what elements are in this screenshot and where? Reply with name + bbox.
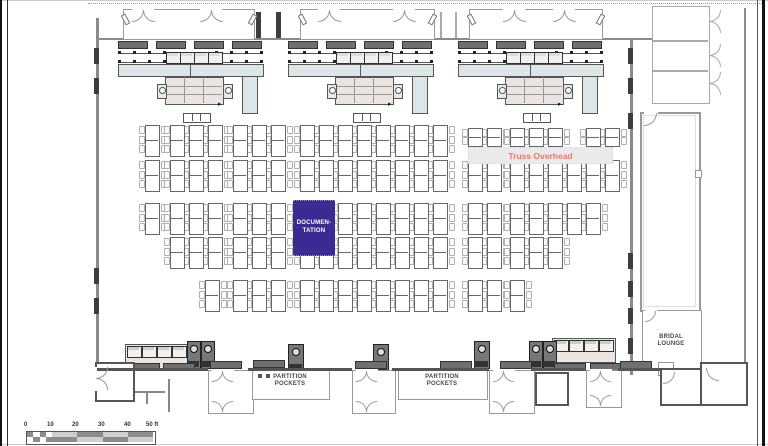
floor-mat — [210, 361, 242, 369]
partition-pockets-left-line2: POCKETS — [262, 381, 318, 388]
rail-post — [288, 60, 291, 63]
floor-mat — [572, 41, 602, 49]
banquet-table — [433, 125, 448, 157]
frame-left-outer — [0, 0, 2, 446]
banquet-table-divider — [146, 218, 158, 219]
banquet-table-divider — [606, 137, 618, 138]
banquet-table — [548, 128, 563, 147]
banquet-table — [319, 160, 334, 192]
scale-label-30: 30 — [98, 422, 105, 428]
banquet-table — [548, 203, 563, 235]
banquet-table-divider — [434, 295, 446, 296]
block-line-h — [165, 86, 222, 87]
banquet-table — [205, 280, 220, 312]
floor-mat — [194, 41, 224, 49]
banquet-table — [145, 160, 160, 192]
banquet-table — [433, 203, 448, 235]
banquet-table-divider — [377, 295, 389, 296]
banquet-table — [271, 203, 286, 235]
banquet-table — [510, 280, 525, 312]
scale-label-40: 40 — [124, 422, 131, 428]
urn-circle — [225, 87, 232, 94]
queue-rail — [118, 62, 165, 63]
urn-circle — [499, 87, 506, 94]
banquet-table-divider — [234, 252, 246, 253]
banquet-table-divider — [511, 295, 523, 296]
rail-post — [473, 51, 476, 54]
chair — [449, 248, 455, 256]
banquet-table — [548, 160, 563, 192]
banquet-table — [271, 280, 286, 312]
banquet-table — [468, 280, 483, 312]
room-door-swing — [709, 55, 721, 67]
banquet-table — [567, 203, 582, 235]
banquet-table — [487, 280, 502, 312]
block-line-v — [203, 77, 204, 103]
banquet-table-divider — [171, 175, 183, 176]
banquet-table — [208, 203, 223, 235]
queue-rail — [118, 53, 165, 54]
right-wall-door-marker — [628, 338, 633, 354]
skirted-table — [523, 113, 551, 123]
banquet-table — [529, 203, 544, 235]
banquet-table-divider — [377, 140, 389, 141]
floor-mat — [355, 361, 387, 369]
banquet-table-divider — [253, 218, 265, 219]
banquet-table — [170, 125, 185, 157]
banquet-table — [170, 160, 185, 192]
chair — [449, 180, 455, 188]
chair — [526, 300, 532, 308]
banquet-table — [468, 128, 483, 147]
banquet-table-divider — [530, 137, 542, 138]
banquet-table — [252, 203, 267, 235]
buffet-unit-top — [585, 341, 596, 344]
chair — [287, 171, 293, 179]
banquet-table-divider — [209, 218, 221, 219]
right-wall-door-marker — [628, 78, 633, 94]
urn-circle — [329, 87, 336, 94]
banquet-table — [300, 125, 315, 157]
room-door-swing — [709, 21, 721, 33]
block-line-v — [524, 77, 525, 103]
service-table-top — [365, 53, 376, 56]
partition-pockets-right-line2: POCKETS — [414, 381, 470, 388]
banquet-table-divider — [234, 295, 246, 296]
banquet-table — [376, 280, 391, 312]
scale-cell — [52, 437, 77, 442]
banquet-table — [189, 203, 204, 235]
banquet-table — [208, 237, 223, 269]
door-opening — [742, 370, 745, 384]
banquet-table-divider — [434, 175, 446, 176]
scale-label-0: 0 — [24, 422, 27, 428]
banquet-table-divider — [320, 140, 332, 141]
banquet-table — [376, 125, 391, 157]
banquet-table-divider — [234, 140, 246, 141]
buffet-unit-top — [158, 347, 169, 350]
banquet-table — [510, 203, 525, 235]
banquet-table — [510, 160, 525, 192]
banquet-table-divider — [171, 218, 183, 219]
banquet-table-divider — [377, 175, 389, 176]
bottom-wall-segment — [392, 368, 489, 371]
banquet-table-divider — [272, 218, 284, 219]
rail-post — [260, 60, 263, 63]
chair — [621, 171, 627, 179]
urn-circle — [395, 87, 402, 94]
service-table-top — [195, 53, 206, 56]
scale-cell — [103, 437, 128, 442]
buffet-unit-top — [570, 341, 581, 344]
entry-vestibule — [469, 9, 603, 40]
banquet-table-divider — [234, 175, 246, 176]
banquet-table-divider — [209, 175, 221, 176]
coffee-urn-circle — [532, 345, 540, 353]
counter-divider — [190, 64, 191, 76]
left-wall — [96, 18, 99, 378]
banquet-table-divider — [253, 175, 265, 176]
banquet-table-divider — [377, 218, 389, 219]
banquet-table-divider — [434, 218, 446, 219]
banquet-table — [468, 237, 483, 269]
banquet-table-divider — [488, 175, 500, 176]
banquet-table — [189, 160, 204, 192]
rail-post — [148, 51, 151, 54]
banquet-table — [189, 237, 204, 269]
coffee-base — [474, 361, 488, 367]
chair — [449, 136, 455, 144]
banquet-table — [271, 237, 286, 269]
chair — [449, 145, 455, 153]
direction-arrow: ▸ — [558, 100, 566, 108]
banquet-table — [605, 128, 620, 147]
banquet-table — [145, 125, 160, 157]
banquet-table — [433, 160, 448, 192]
rail-post — [585, 51, 588, 54]
chair — [287, 145, 293, 153]
banquet-table-divider — [530, 252, 542, 253]
buffet-unit-top — [143, 347, 154, 350]
banquet-table — [145, 203, 160, 235]
frame-right-outer — [762, 0, 765, 446]
banquet-table-divider — [396, 218, 408, 219]
coffee-urn-circle — [292, 348, 300, 356]
banquet-table-divider — [253, 140, 265, 141]
banquet-table-divider — [396, 295, 408, 296]
rail-post — [400, 60, 403, 63]
rail-post — [473, 60, 476, 63]
banquet-table — [487, 128, 502, 147]
chair — [564, 238, 570, 246]
floor-mat — [402, 41, 432, 49]
documentation-label-line2: TATION — [303, 228, 326, 236]
banquet-table — [414, 203, 429, 235]
banquet-table — [338, 237, 353, 269]
banquet-table-divider — [190, 252, 202, 253]
banquet-table-divider — [253, 252, 265, 253]
banquet-table-divider — [171, 252, 183, 253]
floor-mat — [458, 41, 488, 49]
outer-right-wall — [744, 8, 746, 404]
chair — [449, 291, 455, 299]
banquet-table-divider — [549, 175, 561, 176]
banquet-table — [586, 160, 601, 192]
banquet-table — [319, 280, 334, 312]
right-wall-door-marker — [628, 113, 633, 129]
rail-post — [245, 51, 248, 54]
chair — [621, 129, 627, 137]
service-table-top — [379, 53, 390, 56]
banquet-table-divider — [469, 137, 481, 138]
banquet-table-divider — [339, 295, 351, 296]
banquet-table — [433, 280, 448, 312]
wall-tick — [695, 170, 702, 178]
chair — [564, 257, 570, 265]
banquet-table-divider — [549, 137, 561, 138]
rail-post — [488, 51, 491, 54]
counter-wing — [582, 76, 598, 114]
banquet-table — [252, 125, 267, 157]
banquet-table-divider — [511, 175, 523, 176]
chair — [287, 126, 293, 134]
banquet-table-divider — [209, 140, 221, 141]
banquet-table — [414, 237, 429, 269]
chair — [287, 180, 293, 188]
banquet-table — [510, 237, 525, 269]
partition-pockets-label-right: PARTITION POCKETS — [414, 374, 470, 388]
coffee-urn-circle — [546, 345, 554, 353]
banquet-table — [338, 280, 353, 312]
banquet-table-divider — [415, 252, 427, 253]
banquet-table-divider — [146, 140, 158, 141]
banquet-table-divider — [415, 175, 427, 176]
banquet-table-divider — [587, 137, 599, 138]
chair — [602, 204, 608, 212]
banquet-table-divider — [415, 140, 427, 141]
chair — [287, 257, 293, 265]
service-table-top — [549, 53, 560, 56]
banquet-table-divider — [488, 218, 500, 219]
chair — [449, 126, 455, 134]
banquet-table-divider — [606, 175, 618, 176]
rail-post — [430, 60, 433, 63]
buffet-unit-top — [173, 347, 184, 350]
banquet-table-divider — [434, 140, 446, 141]
room-divider-wall — [652, 40, 708, 42]
chair — [287, 300, 293, 308]
banquet-table-divider — [358, 252, 370, 253]
bottom-wall-segment — [96, 368, 208, 371]
skirted-table-divider — [532, 113, 533, 121]
banquet-table-divider — [358, 140, 370, 141]
counter-wing — [242, 76, 258, 114]
partial-wall — [168, 379, 170, 412]
chair — [564, 137, 570, 145]
skirted-table — [353, 113, 381, 123]
block-line-h — [505, 94, 562, 95]
chair — [449, 171, 455, 179]
banquet-table-divider — [339, 140, 351, 141]
rail-post — [600, 60, 603, 63]
chair — [602, 214, 608, 222]
banquet-table-divider — [301, 140, 313, 141]
documentation-label-line1: DOCUMEN- — [297, 220, 332, 228]
chair — [526, 281, 532, 289]
rail-post — [585, 60, 588, 63]
truss-overhead-label: Truss Overhead — [508, 151, 572, 161]
block-line-v — [373, 77, 374, 103]
rail-post — [570, 60, 573, 63]
banquet-table-divider — [469, 295, 481, 296]
block-line-h — [335, 86, 392, 87]
buffet-unit-top — [600, 341, 611, 344]
scale-cell — [77, 437, 102, 442]
head-table-block — [505, 77, 564, 105]
rail-post — [400, 51, 403, 54]
chair — [602, 223, 608, 231]
chair — [449, 214, 455, 222]
banquet-table-divider — [488, 252, 500, 253]
chair — [449, 257, 455, 265]
banquet-table-divider — [190, 175, 202, 176]
direction-arrow: ▸ — [388, 100, 396, 108]
floor-mat — [232, 41, 262, 49]
corridor-wall-dark — [276, 12, 281, 38]
banquet-table-divider — [549, 218, 561, 219]
banquet-table — [357, 160, 372, 192]
banquet-table — [300, 280, 315, 312]
banquet-table-divider — [339, 252, 351, 253]
chair — [564, 248, 570, 256]
banquet-table-divider — [396, 175, 408, 176]
skirted-table-divider — [362, 113, 363, 121]
queue-rail — [288, 53, 335, 54]
banquet-table-divider — [358, 295, 370, 296]
banquet-table — [233, 237, 248, 269]
banquet-floor-plan: DOCUMEN- TATION Truss Overhead BRIDAL LO… — [0, 0, 768, 446]
banquet-table — [395, 125, 410, 157]
bridal-lounge-label: BRIDAL LOUNGE — [645, 334, 697, 348]
rail-post — [600, 51, 603, 54]
rail-post — [458, 51, 461, 54]
chair — [449, 238, 455, 246]
skirted-table-divider — [540, 113, 541, 121]
queue-rail — [458, 62, 505, 63]
floor-mat — [288, 41, 318, 49]
banquet-table-divider — [358, 218, 370, 219]
scale-label-20: 20 — [72, 422, 79, 428]
chair — [449, 300, 455, 308]
banquet-table-divider — [396, 140, 408, 141]
banquet-table — [529, 160, 544, 192]
banquet-table-divider — [339, 175, 351, 176]
service-table-top — [181, 53, 192, 56]
banquet-table-divider — [320, 295, 332, 296]
service-table-top — [337, 53, 348, 56]
banquet-table — [170, 237, 185, 269]
chair — [621, 161, 627, 169]
rail-post — [570, 51, 573, 54]
banquet-table-divider — [511, 137, 523, 138]
floor-mat — [156, 41, 186, 49]
banquet-table — [338, 203, 353, 235]
rail-post — [430, 51, 433, 54]
bridal-lounge-line1: BRIDAL — [645, 334, 697, 341]
counter-divider — [530, 64, 531, 76]
chair — [287, 281, 293, 289]
buffet-unit-top — [128, 347, 139, 350]
rail-post — [415, 60, 418, 63]
floor-mat — [326, 41, 356, 49]
banquet-table — [300, 160, 315, 192]
skirted-table — [183, 113, 211, 123]
banquet-table-divider — [415, 295, 427, 296]
partition-pockets-left-line1: PARTITION — [262, 374, 318, 381]
banquet-table — [170, 203, 185, 235]
banquet-table — [252, 237, 267, 269]
floor-mat — [496, 41, 526, 49]
chair — [449, 204, 455, 212]
left-wall-door-marker — [94, 268, 99, 284]
small-storage-room — [535, 372, 569, 406]
right-wall-door-marker — [628, 253, 633, 269]
block-line-v — [354, 77, 355, 103]
banquet-table — [233, 125, 248, 157]
counter-wing — [412, 76, 428, 114]
banquet-table — [189, 125, 204, 157]
banquet-table — [338, 125, 353, 157]
banquet-table — [338, 160, 353, 192]
room-door-swing — [709, 83, 721, 95]
large-room-inner-line — [643, 115, 696, 307]
banquet-table — [468, 203, 483, 235]
service-table-top — [351, 53, 362, 56]
chair — [287, 291, 293, 299]
banquet-table — [395, 203, 410, 235]
banquet-table — [357, 280, 372, 312]
urn-circle — [565, 87, 572, 94]
corridor-wall — [455, 12, 457, 38]
chair — [621, 180, 627, 188]
chair — [287, 136, 293, 144]
banquet-table-divider — [396, 252, 408, 253]
banquet-table — [376, 160, 391, 192]
banquet-table-divider — [415, 218, 427, 219]
block-line-h — [335, 94, 392, 95]
banquet-table-divider — [469, 252, 481, 253]
scale-label-50ft: 50 ft — [146, 422, 158, 428]
rail-post — [118, 51, 121, 54]
banquet-table-divider — [469, 218, 481, 219]
banquet-table-divider — [171, 140, 183, 141]
rail-post — [318, 60, 321, 63]
left-wall-door-marker — [94, 78, 99, 94]
head-table-block — [165, 77, 224, 105]
banquet-table — [433, 237, 448, 269]
floor-mat — [500, 361, 532, 369]
banquet-table — [319, 125, 334, 157]
banquet-table — [468, 160, 483, 192]
banquet-table-divider — [272, 175, 284, 176]
scale-cell — [128, 437, 153, 442]
banquet-table-divider — [190, 140, 202, 141]
banquet-table — [605, 160, 620, 192]
head-table-block — [335, 77, 394, 105]
banquet-table — [357, 237, 372, 269]
counter-divider — [360, 64, 361, 76]
room-divider-wall — [652, 70, 708, 72]
